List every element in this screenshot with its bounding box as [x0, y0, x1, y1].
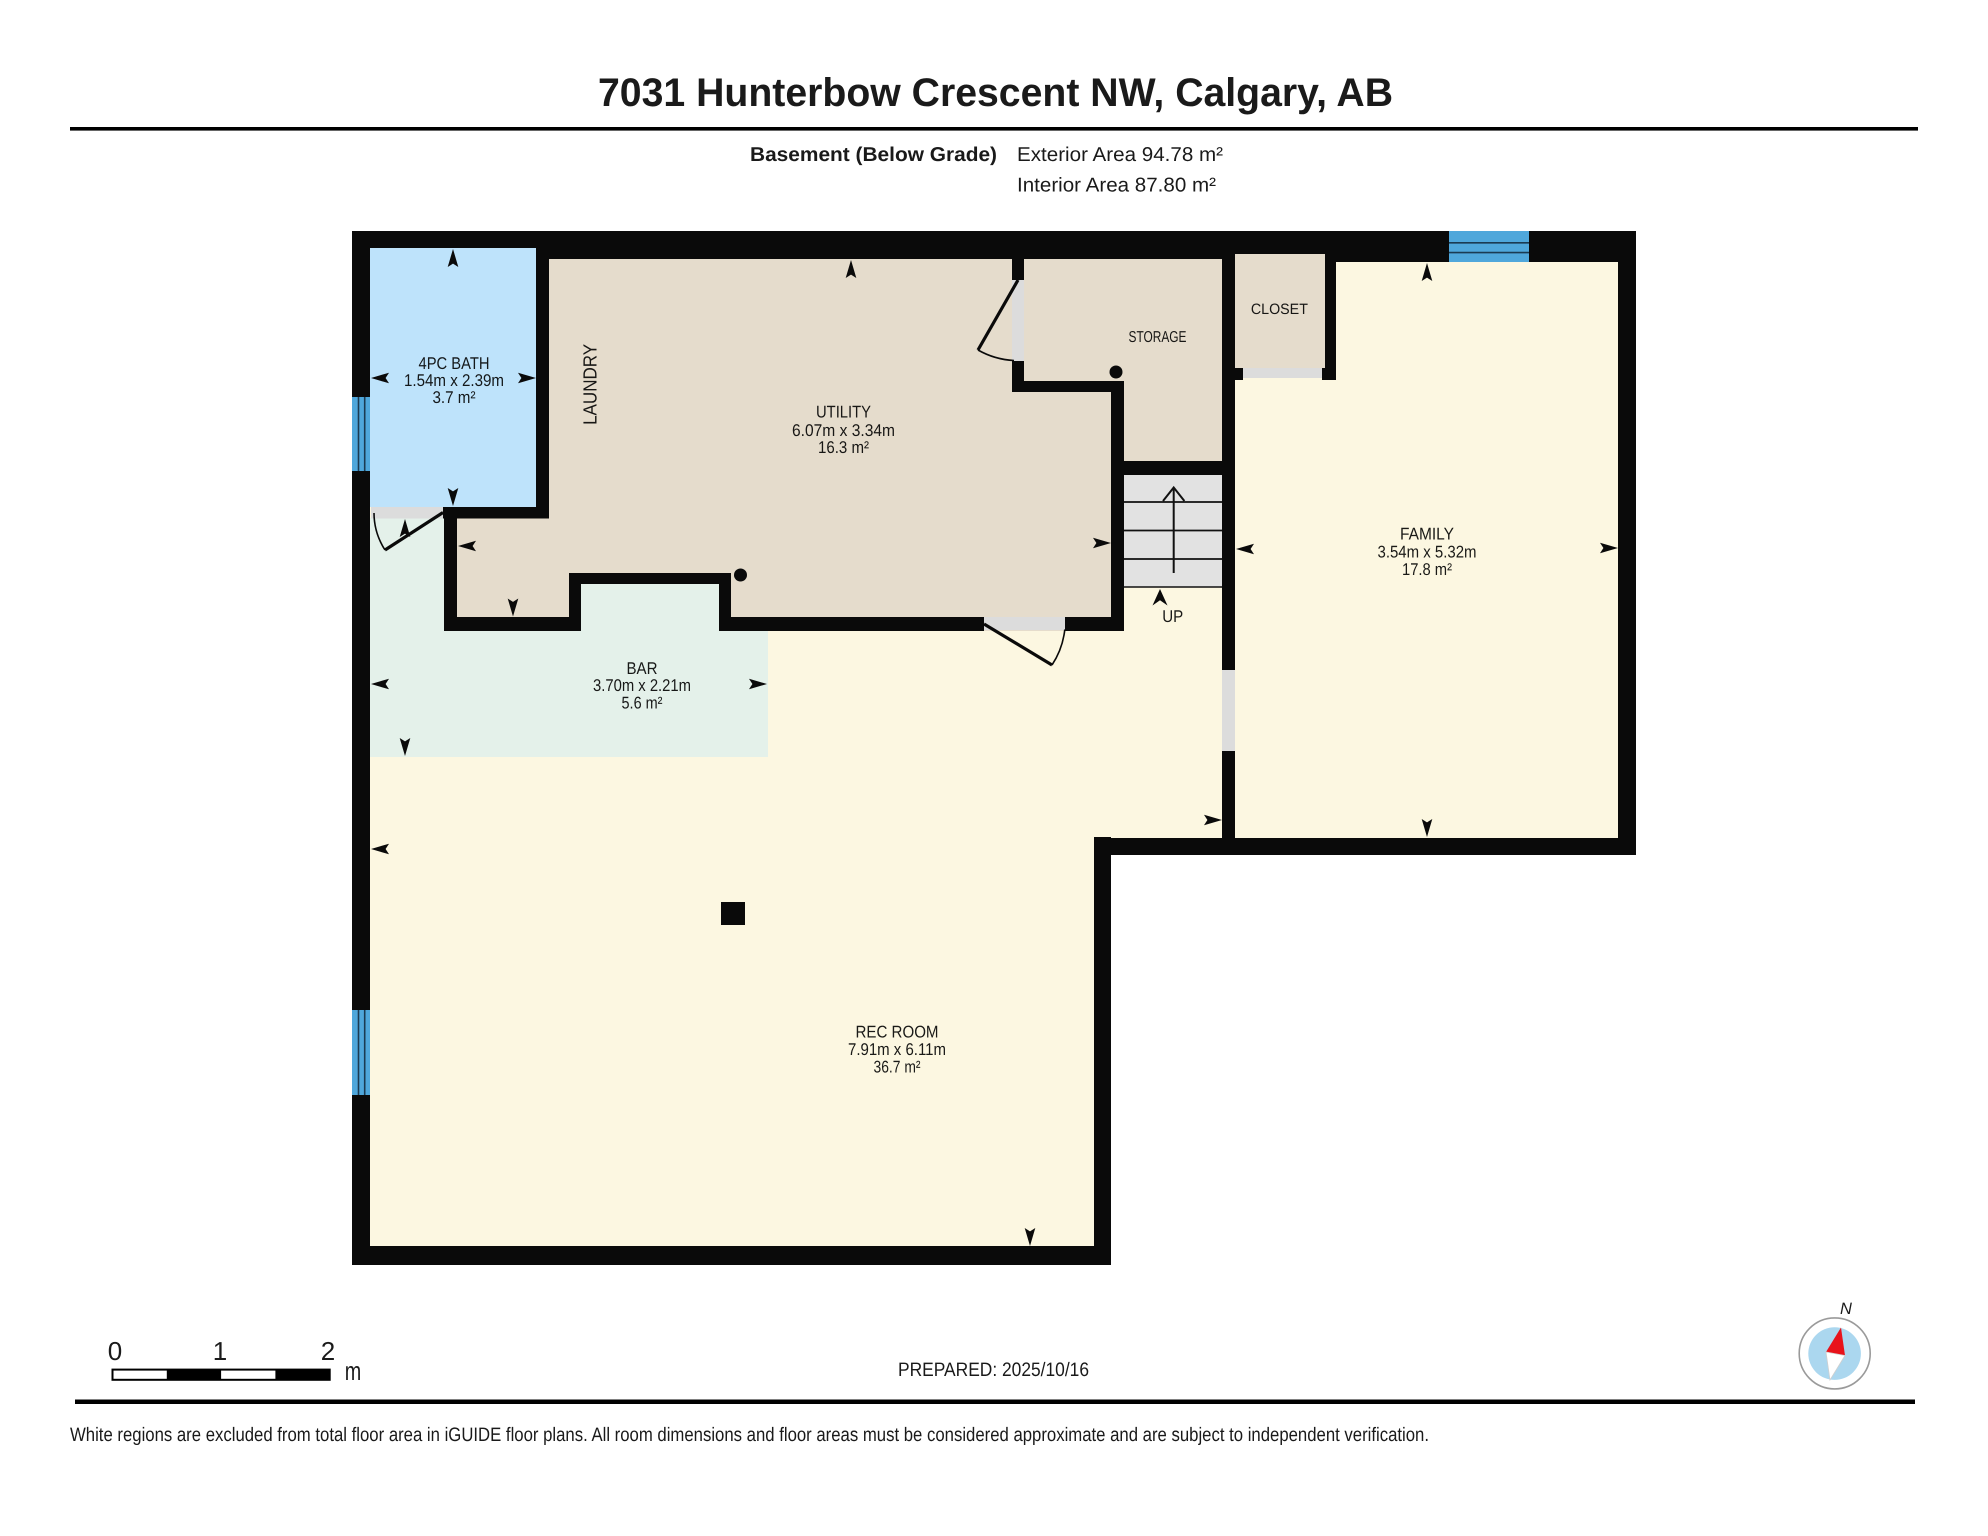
svg-text:16.3 m²: 16.3 m² [818, 438, 869, 457]
svg-text:REC ROOM: REC ROOM [856, 1023, 939, 1042]
svg-text:m: m [345, 1356, 362, 1386]
svg-text:5.6 m²: 5.6 m² [622, 694, 663, 713]
svg-text:17.8 m²: 17.8 m² [1402, 560, 1452, 579]
svg-text:7.91m x 6.11m: 7.91m x 6.11m [848, 1040, 946, 1059]
svg-text:FAMILY: FAMILY [1400, 525, 1454, 544]
svg-text:2: 2 [321, 1336, 335, 1366]
svg-text:Exterior Area 94.78 m²: Exterior Area 94.78 m² [1017, 144, 1223, 166]
svg-text:7031 Hunterbow Crescent NW, Ca: 7031 Hunterbow Crescent NW, Calgary, AB [598, 71, 1393, 115]
svg-text:Interior Area 87.80 m²: Interior Area 87.80 m² [1017, 175, 1216, 197]
svg-text:Basement (Below Grade): Basement (Below Grade) [750, 144, 997, 166]
svg-text:UTILITY: UTILITY [816, 403, 871, 422]
svg-text:36.7 m²: 36.7 m² [874, 1058, 921, 1077]
svg-text:3.70m x 2.21m: 3.70m x 2.21m [593, 676, 691, 695]
svg-text:0: 0 [108, 1336, 122, 1366]
svg-text:N: N [1840, 1300, 1852, 1318]
svg-text:UP: UP [1162, 607, 1183, 626]
svg-text:3.54m x 5.32m: 3.54m x 5.32m [1378, 543, 1477, 562]
svg-text:STORAGE: STORAGE [1129, 329, 1187, 346]
svg-text:LAUNDRY: LAUNDRY [580, 344, 601, 425]
svg-text:PREPARED: 2025/10/16: PREPARED: 2025/10/16 [898, 1359, 1089, 1381]
svg-text:White regions are excluded fro: White regions are excluded from total fl… [70, 1424, 1429, 1446]
svg-text:3.7 m²: 3.7 m² [433, 388, 476, 407]
svg-text:CLOSET: CLOSET [1251, 301, 1308, 318]
svg-text:1: 1 [213, 1336, 227, 1366]
